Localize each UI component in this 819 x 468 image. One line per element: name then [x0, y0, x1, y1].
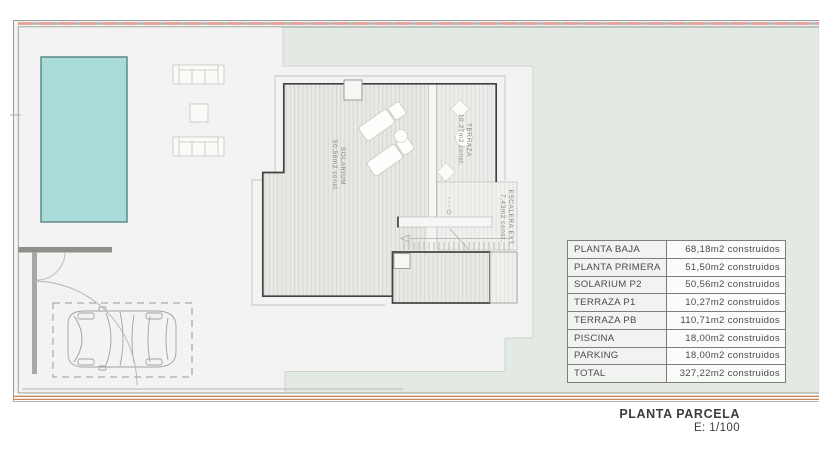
- escalera-area: 7,43m2 const.: [498, 183, 506, 253]
- drawing-title: PLANTA PARCELA: [540, 407, 740, 421]
- title-block: PLANTA PARCELA E: 1/100: [540, 407, 740, 434]
- solarium-name: SOLARIUM: [338, 131, 346, 201]
- coffee-table: [190, 104, 208, 122]
- round-side-table: [395, 130, 408, 143]
- side-wall: [32, 252, 37, 374]
- area-value: 327,22m2 construidos: [666, 365, 785, 383]
- area-value: 10,27m2 construidos: [666, 294, 785, 312]
- table-row: TERRAZA PB 110,71m2 construidos: [568, 312, 786, 330]
- table-row: PARKING 18,00m2 construidos: [568, 347, 786, 365]
- terraza-name: TERRAZA: [464, 105, 472, 175]
- stair-landing: [398, 217, 492, 227]
- area-value: 110,71m2 construidos: [666, 312, 785, 330]
- table-row: TOTAL 327,22m2 construidos: [568, 365, 786, 383]
- area-label: SOLARIUM P2: [568, 276, 667, 294]
- area-label: PISCINA: [568, 329, 667, 347]
- drawing-scale: E: 1/100: [540, 422, 740, 434]
- area-label: PARKING: [568, 347, 667, 365]
- area-label: TERRAZA P1: [568, 294, 667, 312]
- area-label: TOTAL: [568, 365, 667, 383]
- area-value: 51,50m2 construidos: [666, 258, 785, 276]
- solarium-label: SOLARIUM 50,56m2 const.: [330, 131, 346, 201]
- area-value: 18,00m2 construidos: [666, 347, 785, 365]
- table-row: PISCINA 18,00m2 construidos: [568, 329, 786, 347]
- area-label: PLANTA BAJA: [568, 241, 667, 259]
- area-value: 68,18m2 construidos: [666, 241, 785, 259]
- terraza-area: 10,27m2 const.: [456, 105, 464, 175]
- table-row: PLANTA PRIMERA 51,50m2 construidos: [568, 258, 786, 276]
- escalera-name: ESCALERA EXT.: [506, 183, 514, 253]
- sofa: [173, 137, 224, 156]
- solarium-area: 50,56m2 const.: [330, 131, 338, 201]
- swimming-pool: [41, 57, 127, 222]
- area-value: 18,00m2 construidos: [666, 329, 785, 347]
- lower-deck-annex: [490, 252, 517, 303]
- table-row: PLANTA BAJA 68,18m2 construidos: [568, 241, 786, 259]
- sofa: [173, 65, 224, 84]
- plan-drawing: [0, 0, 819, 468]
- roof-access-hatch: [344, 80, 362, 100]
- terraza-label: TERRAZA 10,27m2 const.: [456, 105, 472, 175]
- partition-wall: [428, 84, 436, 222]
- area-label: PLANTA PRIMERA: [568, 258, 667, 276]
- table-row: TERRAZA P1 10,27m2 construidos: [568, 294, 786, 312]
- area-value: 50,56m2 construidos: [666, 276, 785, 294]
- entrance-wall: [18, 247, 112, 253]
- table-row: SOLARIUM P2 50,56m2 construidos: [568, 276, 786, 294]
- areas-table: PLANTA BAJA 68,18m2 construidos PLANTA P…: [567, 240, 786, 383]
- deck-notch: [394, 254, 410, 269]
- area-label: TERRAZA PB: [568, 312, 667, 330]
- escalera-label: ESCALERA EXT. 7,43m2 const.: [498, 183, 514, 253]
- site-plan-sheet: SOLARIUM 50,56m2 const. TERRAZA 10,27m2 …: [0, 0, 819, 468]
